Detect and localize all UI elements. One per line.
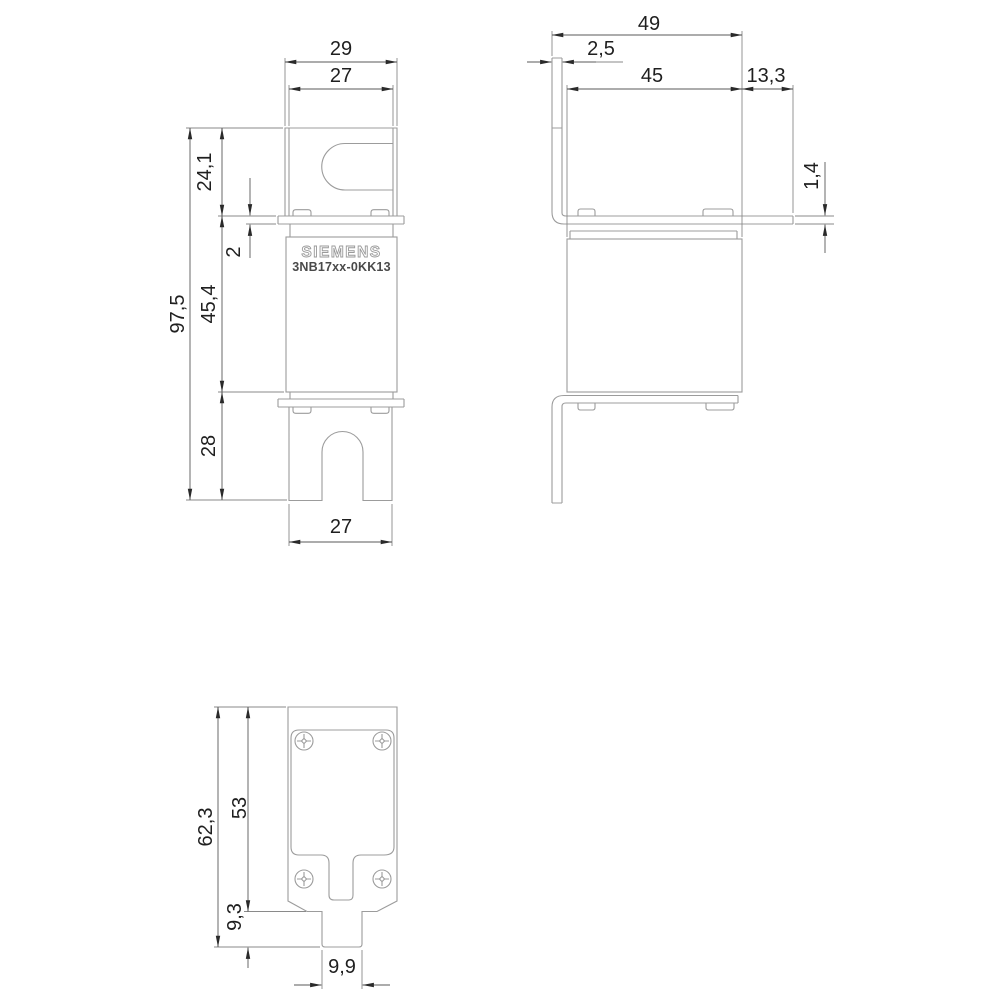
dim-label-plate-length: 53 <box>229 797 251 819</box>
dim-label-blade-outer-width: 29 <box>330 38 352 60</box>
dim-label-overall-length: 62,3 <box>195 808 217 847</box>
dim-label-tab-width: 9,9 <box>328 956 356 978</box>
side-dimensions: 49 2,5 45 13,3 1,4 <box>527 13 834 253</box>
dim-label-bottom-blade-height: 28 <box>198 435 220 457</box>
screw-bottom-right <box>373 870 391 888</box>
dim-label-blade-inner-width: 27 <box>330 65 352 87</box>
front-geometry <box>278 128 404 501</box>
side-top-dimples <box>578 209 733 216</box>
front-bottom-dimples <box>293 407 389 413</box>
dim-label-blade-plate-thickness: 2,5 <box>587 38 615 60</box>
siemens-logo: SIEMENS <box>301 244 381 261</box>
screw-top-left <box>295 732 313 750</box>
dim-label-body-height: 45,4 <box>198 285 220 324</box>
dim-label-tab-length: 9,3 <box>224 903 246 931</box>
screw-bottom-left <box>295 870 313 888</box>
front-top-neck <box>290 224 393 237</box>
technical-drawing-page: 29 27 24,1 2 97,5 45,4 28 27 SIEMENS 3NB… <box>0 0 1000 1000</box>
front-top-blade-slot <box>322 144 393 191</box>
bottom-geometry <box>288 707 397 947</box>
bottom-lobes-notch <box>291 847 394 900</box>
front-bottom-neck <box>290 392 393 399</box>
screw-top-right <box>373 732 391 750</box>
front-top-foot-plate <box>278 216 404 224</box>
front-top-blade <box>285 128 397 216</box>
part-number: 3NB17xx-0KK13 <box>292 260 391 274</box>
side-top-neck <box>570 231 737 239</box>
side-body <box>567 239 742 392</box>
dim-label-top-blade-height: 24,1 <box>194 153 216 192</box>
side-view: 49 2,5 45 13,3 1,4 <box>527 13 834 503</box>
bottom-view: 62,3 53 9,3 9,9 <box>195 707 397 989</box>
front-view: 29 27 24,1 2 97,5 45,4 28 27 SIEMENS 3NB… <box>167 38 404 546</box>
side-bottom-blade <box>552 396 738 504</box>
front-bottom-blade <box>289 407 392 501</box>
side-bottom-dimples <box>578 403 734 410</box>
dim-label-bottom-blade-width: 27 <box>330 516 352 538</box>
dim-label-body-depth: 45 <box>641 65 663 87</box>
bottom-inner-contour <box>291 730 394 847</box>
front-bottom-foot-plate <box>278 399 404 407</box>
dim-label-blade-overhang: 13,3 <box>747 65 786 87</box>
front-top-dimples <box>293 210 389 216</box>
dim-label-overall-height: 97,5 <box>167 295 189 334</box>
dim-label-foot-plate-thickness: 1,4 <box>801 162 823 190</box>
dim-label-overall-depth: 49 <box>638 13 660 35</box>
side-geometry <box>552 58 793 503</box>
dimension-drawing-canvas: 29 27 24,1 2 97,5 45,4 28 27 SIEMENS 3NB… <box>0 0 1000 1000</box>
dim-label-foot-thickness: 2 <box>223 246 245 257</box>
product-label: SIEMENS 3NB17xx-0KK13 <box>292 244 391 274</box>
